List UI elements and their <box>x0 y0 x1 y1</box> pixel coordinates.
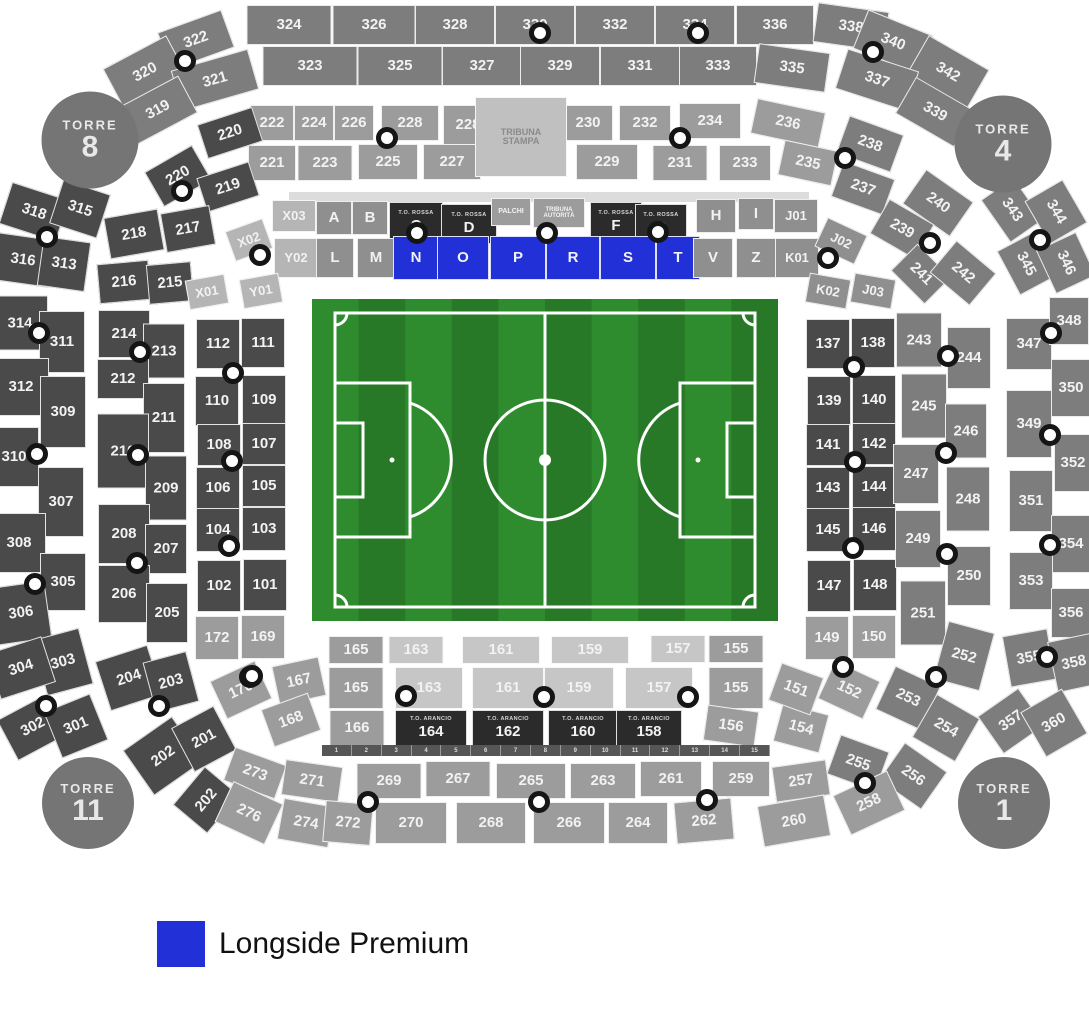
section-label: 232 <box>632 115 657 131</box>
section-label: 329 <box>547 58 572 74</box>
section-caption: T.O. ROSSA <box>598 211 633 217</box>
section-label: 356 <box>1058 605 1083 621</box>
section-label: 315 <box>66 198 95 221</box>
gate-marker-icon <box>35 695 57 717</box>
section-351[interactable]: 351 <box>1009 470 1053 532</box>
section-label: 109 <box>251 392 276 408</box>
section-r[interactable]: R <box>546 236 600 280</box>
section-147[interactable]: 147 <box>807 560 851 612</box>
football-pitch <box>312 299 778 621</box>
section-156[interactable]: 156 <box>703 705 760 748</box>
section-label: 138 <box>860 335 885 351</box>
gate-marker-icon <box>395 685 417 707</box>
section-label: 150 <box>861 629 886 645</box>
section-159[interactable]: 159 <box>544 667 614 709</box>
section-label: 240 <box>923 189 953 216</box>
section-o[interactable]: O <box>437 236 489 280</box>
section-label: 233 <box>732 155 757 171</box>
section-k02[interactable]: K02 <box>805 273 852 310</box>
section-label: 248 <box>955 491 980 507</box>
section-label: 149 <box>814 630 839 646</box>
section-233[interactable]: 233 <box>719 145 771 181</box>
section-label: B <box>365 210 376 226</box>
gate-marker-icon <box>843 356 865 378</box>
section-a[interactable]: A <box>316 201 352 235</box>
section-label: R <box>568 250 579 266</box>
section-label: 206 <box>111 586 136 602</box>
gate-marker-icon <box>148 695 170 717</box>
section-l[interactable]: L <box>316 238 354 278</box>
section-label: 349 <box>1016 416 1041 432</box>
tower-number: 4 <box>995 137 1012 167</box>
section-271[interactable]: 271 <box>281 759 343 803</box>
section-245[interactable]: 245 <box>901 374 947 439</box>
section-148[interactable]: 148 <box>853 559 897 611</box>
section-151[interactable]: 151 <box>768 663 824 716</box>
section-label: H <box>711 208 722 224</box>
section-label: 358 <box>1060 653 1088 674</box>
section-label: 151 <box>782 677 811 700</box>
section-label: 272 <box>335 814 361 832</box>
section-label: 252 <box>950 645 978 667</box>
section-label: 110 <box>205 393 229 409</box>
gate-marker-icon <box>357 791 379 813</box>
section-360[interactable]: 360 <box>1020 688 1088 757</box>
section-label: 202 <box>148 742 178 769</box>
section-260[interactable]: 260 <box>757 794 831 847</box>
section-161[interactable]: 161 <box>472 667 544 709</box>
section-x03[interactable]: X03 <box>272 200 316 232</box>
gate-marker-icon <box>696 789 718 811</box>
gate-marker-icon <box>842 537 864 559</box>
section-label: Y01 <box>248 282 273 299</box>
gate-marker-icon <box>24 573 46 595</box>
section-label: 148 <box>862 577 887 593</box>
section-label: 346 <box>1054 248 1079 277</box>
section-label: 350 <box>1058 380 1083 396</box>
section-i[interactable]: I <box>738 198 774 230</box>
section-356[interactable]: 356 <box>1051 588 1089 638</box>
section-232[interactable]: 232 <box>619 105 671 141</box>
section-label: 339 <box>920 99 950 125</box>
tower-number: 11 <box>72 796 104 826</box>
section-label: 141 <box>815 437 840 453</box>
section-336[interactable]: 336 <box>736 5 814 45</box>
section-235[interactable]: 235 <box>777 140 838 187</box>
section-333[interactable]: 333 <box>679 46 757 86</box>
section-label: 316 <box>10 250 37 269</box>
section-label: 140 <box>861 392 886 408</box>
section-label: 239 <box>887 216 917 242</box>
section-209[interactable]: 209 <box>145 456 187 521</box>
section-label: 313 <box>51 254 78 273</box>
section-164[interactable]: T.O. ARANCIO164 <box>395 710 467 746</box>
section-143[interactable]: 143 <box>806 467 850 509</box>
section-227[interactable]: 227 <box>423 144 481 180</box>
section-label: 107 <box>251 436 276 452</box>
section-325[interactable]: 325 <box>358 46 443 86</box>
section-label: 270 <box>398 815 423 831</box>
gate-marker-icon <box>528 791 550 813</box>
gate-marker-icon <box>677 686 699 708</box>
section-270[interactable]: 270 <box>375 802 447 844</box>
section-158[interactable]: T.O. ARANCIO158 <box>616 710 682 746</box>
section-label: M <box>370 250 383 266</box>
section-tribuna-stampa[interactable]: TRIBUNA STAMPA <box>475 97 567 177</box>
section-168[interactable]: 168 <box>261 693 322 748</box>
gangway-number: 3 <box>382 745 412 756</box>
section-218[interactable]: 218 <box>103 209 164 260</box>
section-335[interactable]: 335 <box>754 43 831 93</box>
section-caption: T.O. ROSSA <box>643 213 678 219</box>
section-261[interactable]: 261 <box>640 761 702 797</box>
section-label: 212 <box>110 371 135 387</box>
section-label: 223 <box>312 155 337 171</box>
section-label: 342 <box>933 59 963 85</box>
section-label: 201 <box>189 726 218 752</box>
section-label: 157 <box>646 680 671 696</box>
section-label: 304 <box>7 657 36 680</box>
section-label: 331 <box>627 58 652 74</box>
section-label: 218 <box>120 224 147 244</box>
gate-marker-icon <box>129 341 151 363</box>
section-label: X03 <box>282 209 305 223</box>
section-216[interactable]: 216 <box>96 260 151 304</box>
section-label: 202 <box>192 785 220 814</box>
section-label: 101 <box>252 577 277 593</box>
section-label: 106 <box>205 480 230 496</box>
section-label: 144 <box>861 479 886 495</box>
section-label: 325 <box>387 58 412 74</box>
section-350[interactable]: 350 <box>1051 359 1089 417</box>
section-label: 258 <box>854 791 883 816</box>
section-label: 242 <box>948 259 977 287</box>
section-label: 158 <box>636 724 661 740</box>
gate-marker-icon <box>834 147 856 169</box>
tower-8: TORRE8 <box>42 92 139 189</box>
gate-marker-icon <box>533 686 555 708</box>
section-label: 229 <box>594 154 619 170</box>
section-label: 219 <box>214 176 243 199</box>
section-label: 162 <box>495 724 520 740</box>
section-263[interactable]: 263 <box>570 763 636 799</box>
section-163[interactable]: 163 <box>389 636 444 664</box>
section-label: 260 <box>780 811 807 831</box>
gate-marker-icon <box>241 665 263 687</box>
section-x01[interactable]: X01 <box>185 274 230 310</box>
gangway-number: 4 <box>412 745 442 756</box>
section-155[interactable]: 155 <box>709 635 764 663</box>
section-251[interactable]: 251 <box>900 581 946 646</box>
section-label: 169 <box>250 629 275 645</box>
section-caption: T.O. ARANCIO <box>562 717 604 723</box>
section-label: 312 <box>8 379 33 395</box>
section-109[interactable]: 109 <box>242 375 286 425</box>
section-label: I <box>754 206 758 222</box>
section-149[interactable]: 149 <box>805 616 849 660</box>
section-label: 352 <box>1060 455 1085 471</box>
section-label: 103 <box>251 521 276 537</box>
tower-number: 8 <box>82 133 99 163</box>
section-217[interactable]: 217 <box>160 205 216 253</box>
section-z[interactable]: Z <box>736 238 776 278</box>
section-label: 172 <box>204 630 229 646</box>
section-103[interactable]: 103 <box>242 507 286 551</box>
section-label: 137 <box>815 336 840 352</box>
gate-marker-icon <box>687 22 709 44</box>
section-label: 208 <box>111 526 136 542</box>
section-248[interactable]: 248 <box>946 467 990 532</box>
section-s[interactable]: S <box>600 236 656 280</box>
section-169[interactable]: 169 <box>241 615 285 659</box>
section-j03[interactable]: J03 <box>850 273 897 310</box>
section-label: N <box>411 250 422 266</box>
gate-marker-icon <box>28 322 50 344</box>
section-107[interactable]: 107 <box>242 423 286 465</box>
section-224[interactable]: 224 <box>294 105 334 141</box>
section-label: Z <box>751 250 760 266</box>
section-223[interactable]: 223 <box>298 145 353 181</box>
section-label: D <box>464 220 475 236</box>
section-323[interactable]: 323 <box>263 46 358 86</box>
section-label: 250 <box>956 568 981 584</box>
tower-number: 1 <box>996 796 1013 826</box>
section-label: 261 <box>658 771 683 787</box>
section-label: 244 <box>956 350 981 366</box>
section-label: K02 <box>815 282 841 300</box>
section-label: 231 <box>667 155 692 171</box>
gate-marker-icon <box>832 656 854 678</box>
gangway-number: 2 <box>352 745 382 756</box>
gangway-number: 13 <box>680 745 710 756</box>
gate-marker-icon <box>647 221 669 243</box>
section-label: 303 <box>49 651 77 673</box>
section-label: T <box>673 250 682 266</box>
section-162[interactable]: T.O. ARANCIO162 <box>472 710 544 746</box>
section-label: A <box>329 210 340 226</box>
section-230[interactable]: 230 <box>563 105 613 141</box>
section-249[interactable]: 249 <box>895 510 941 568</box>
section-172[interactable]: 172 <box>195 616 239 660</box>
section-label: 139 <box>816 393 841 409</box>
section-331[interactable]: 331 <box>600 46 680 86</box>
section-label: 154 <box>787 717 815 739</box>
gate-marker-icon <box>249 244 271 266</box>
gate-marker-icon <box>862 41 884 63</box>
section-label: 211 <box>152 410 176 426</box>
section-105[interactable]: 105 <box>242 465 286 507</box>
section-label: 228 <box>397 115 422 131</box>
section-label: 163 <box>416 680 441 696</box>
section-m[interactable]: M <box>357 238 395 278</box>
section-label: 344 <box>1043 197 1069 227</box>
section-140[interactable]: 140 <box>852 375 896 425</box>
section-label: 166 <box>344 720 369 736</box>
gate-marker-icon <box>26 443 48 465</box>
section-139[interactable]: 139 <box>807 376 851 426</box>
section-label: 230 <box>575 115 600 131</box>
section-v[interactable]: V <box>693 238 733 278</box>
tower-1: TORRE1 <box>958 757 1050 849</box>
section-label: 235 <box>794 153 822 174</box>
section-label: 262 <box>691 812 717 830</box>
section-327[interactable]: 327 <box>442 46 522 86</box>
section-label: 306 <box>8 603 35 622</box>
tower-11: TORRE11 <box>42 757 134 849</box>
gate-marker-icon <box>1040 322 1062 344</box>
section-label: P <box>513 250 523 266</box>
section-label: 159 <box>577 642 602 658</box>
section-309[interactable]: 309 <box>40 376 86 448</box>
section-150[interactable]: 150 <box>852 615 896 659</box>
section-y01[interactable]: Y01 <box>239 273 284 309</box>
section-label: 326 <box>361 17 386 33</box>
section-label: 351 <box>1018 493 1043 509</box>
section-label: 147 <box>816 578 841 594</box>
section-label: 322 <box>182 28 211 51</box>
section-264[interactable]: 264 <box>608 802 668 844</box>
section-160[interactable]: T.O. ARANCIO160 <box>548 710 618 746</box>
section-247[interactable]: 247 <box>893 444 939 504</box>
section-label: 263 <box>590 773 615 789</box>
gangway-number: 1 <box>322 745 352 756</box>
gate-marker-icon <box>536 222 558 244</box>
section-label: 264 <box>625 815 650 831</box>
section-106[interactable]: 106 <box>196 467 240 509</box>
gate-marker-icon <box>174 50 196 72</box>
section-226[interactable]: 226 <box>334 105 374 141</box>
gate-marker-icon <box>218 535 240 557</box>
section-161[interactable]: 161 <box>462 636 540 664</box>
section-label: 336 <box>762 17 787 33</box>
section-label: 221 <box>259 155 284 171</box>
section-label: 245 <box>911 398 936 414</box>
section-label: 142 <box>861 436 886 452</box>
section-label: 159 <box>566 680 591 696</box>
gate-marker-icon <box>919 232 941 254</box>
section-label: 152 <box>834 678 863 703</box>
section-label: 205 <box>154 605 179 621</box>
section-326[interactable]: 326 <box>333 5 416 45</box>
section-165[interactable]: 165 <box>329 667 384 709</box>
gangway-number: 9 <box>561 745 591 756</box>
section-h[interactable]: H <box>696 199 736 233</box>
section-label: 215 <box>157 274 183 292</box>
section-label: 268 <box>478 815 503 831</box>
section-329[interactable]: 329 <box>520 46 600 86</box>
section-label: 259 <box>728 771 753 787</box>
section-207[interactable]: 207 <box>145 524 187 574</box>
section-205[interactable]: 205 <box>146 583 188 643</box>
section-label: 255 <box>844 751 873 774</box>
section-p[interactable]: P <box>490 236 546 280</box>
section-label: 324 <box>276 17 301 33</box>
section-label: S <box>623 250 633 266</box>
section-label: PALCHI <box>498 208 524 215</box>
section-166[interactable]: 166 <box>330 710 385 746</box>
section-label: 207 <box>153 541 178 557</box>
section-label: 167 <box>285 671 313 692</box>
section-label: 274 <box>292 813 319 833</box>
section-label: 160 <box>570 724 595 740</box>
section-y02[interactable]: Y02 <box>274 238 318 278</box>
gate-marker-icon <box>817 247 839 269</box>
section-231[interactable]: 231 <box>653 145 708 181</box>
section-label: 257 <box>788 771 815 790</box>
section-label: 102 <box>206 578 231 594</box>
gangway-number: 5 <box>441 745 471 756</box>
section-221[interactable]: 221 <box>248 145 296 181</box>
gate-marker-icon <box>669 127 691 149</box>
section-label: 237 <box>849 176 878 199</box>
section-242[interactable]: 242 <box>930 240 997 306</box>
section-label: 273 <box>241 761 270 784</box>
gate-marker-icon <box>126 552 148 574</box>
section-label: 111 <box>251 335 274 351</box>
section-label: Y02 <box>284 251 307 265</box>
section-352[interactable]: 352 <box>1054 434 1089 492</box>
section-label: 105 <box>251 478 276 494</box>
section-label: TRIBUNA STAMPA <box>501 128 542 147</box>
section-212[interactable]: 212 <box>97 359 149 399</box>
section-101[interactable]: 101 <box>243 559 287 611</box>
section-225[interactable]: 225 <box>358 144 418 180</box>
gate-marker-icon <box>222 362 244 384</box>
section-label: 224 <box>301 115 326 131</box>
section-label: 360 <box>1039 710 1069 736</box>
section-155[interactable]: 155 <box>709 667 764 709</box>
section-label: 214 <box>111 326 136 342</box>
section-label: J03 <box>861 282 885 299</box>
section-229[interactable]: 229 <box>576 144 638 180</box>
section-211[interactable]: 211 <box>143 383 185 453</box>
section-332[interactable]: 332 <box>575 5 655 45</box>
section-165[interactable]: 165 <box>329 636 384 664</box>
section-157[interactable]: 157 <box>651 635 706 663</box>
section-k01[interactable]: K01 <box>775 238 819 278</box>
section-353[interactable]: 353 <box>1009 552 1053 610</box>
section-159[interactable]: 159 <box>551 636 629 664</box>
gate-marker-icon <box>1039 424 1061 446</box>
section-label: 345 <box>1013 249 1039 278</box>
section-caption: T.O. ROSSA <box>398 211 433 217</box>
gangway-number-strip: 123456789101112131415 <box>322 745 770 756</box>
section-label: 155 <box>723 680 748 696</box>
gate-marker-icon <box>36 226 58 248</box>
section-206[interactable]: 206 <box>98 565 150 623</box>
section-label: 318 <box>20 201 49 224</box>
section-label: L <box>330 250 339 266</box>
section-label: 145 <box>815 522 840 538</box>
section-243[interactable]: 243 <box>896 313 942 368</box>
section-palchi[interactable]: PALCHI <box>491 198 531 226</box>
section-label: 332 <box>602 17 627 33</box>
section-label: 247 <box>903 466 928 482</box>
section-102[interactable]: 102 <box>197 560 241 612</box>
section-324[interactable]: 324 <box>247 5 332 45</box>
section-label: 209 <box>153 480 178 496</box>
section-label: 310 <box>1 449 26 465</box>
section-111[interactable]: 111 <box>241 318 285 368</box>
gate-marker-icon <box>127 444 149 466</box>
section-b[interactable]: B <box>352 201 388 235</box>
section-259[interactable]: 259 <box>712 761 770 797</box>
gate-marker-icon <box>1029 229 1051 251</box>
section-268[interactable]: 268 <box>456 802 526 844</box>
section-j01[interactable]: J01 <box>774 199 818 233</box>
section-328[interactable]: 328 <box>415 5 495 45</box>
section-267[interactable]: 267 <box>426 761 491 797</box>
